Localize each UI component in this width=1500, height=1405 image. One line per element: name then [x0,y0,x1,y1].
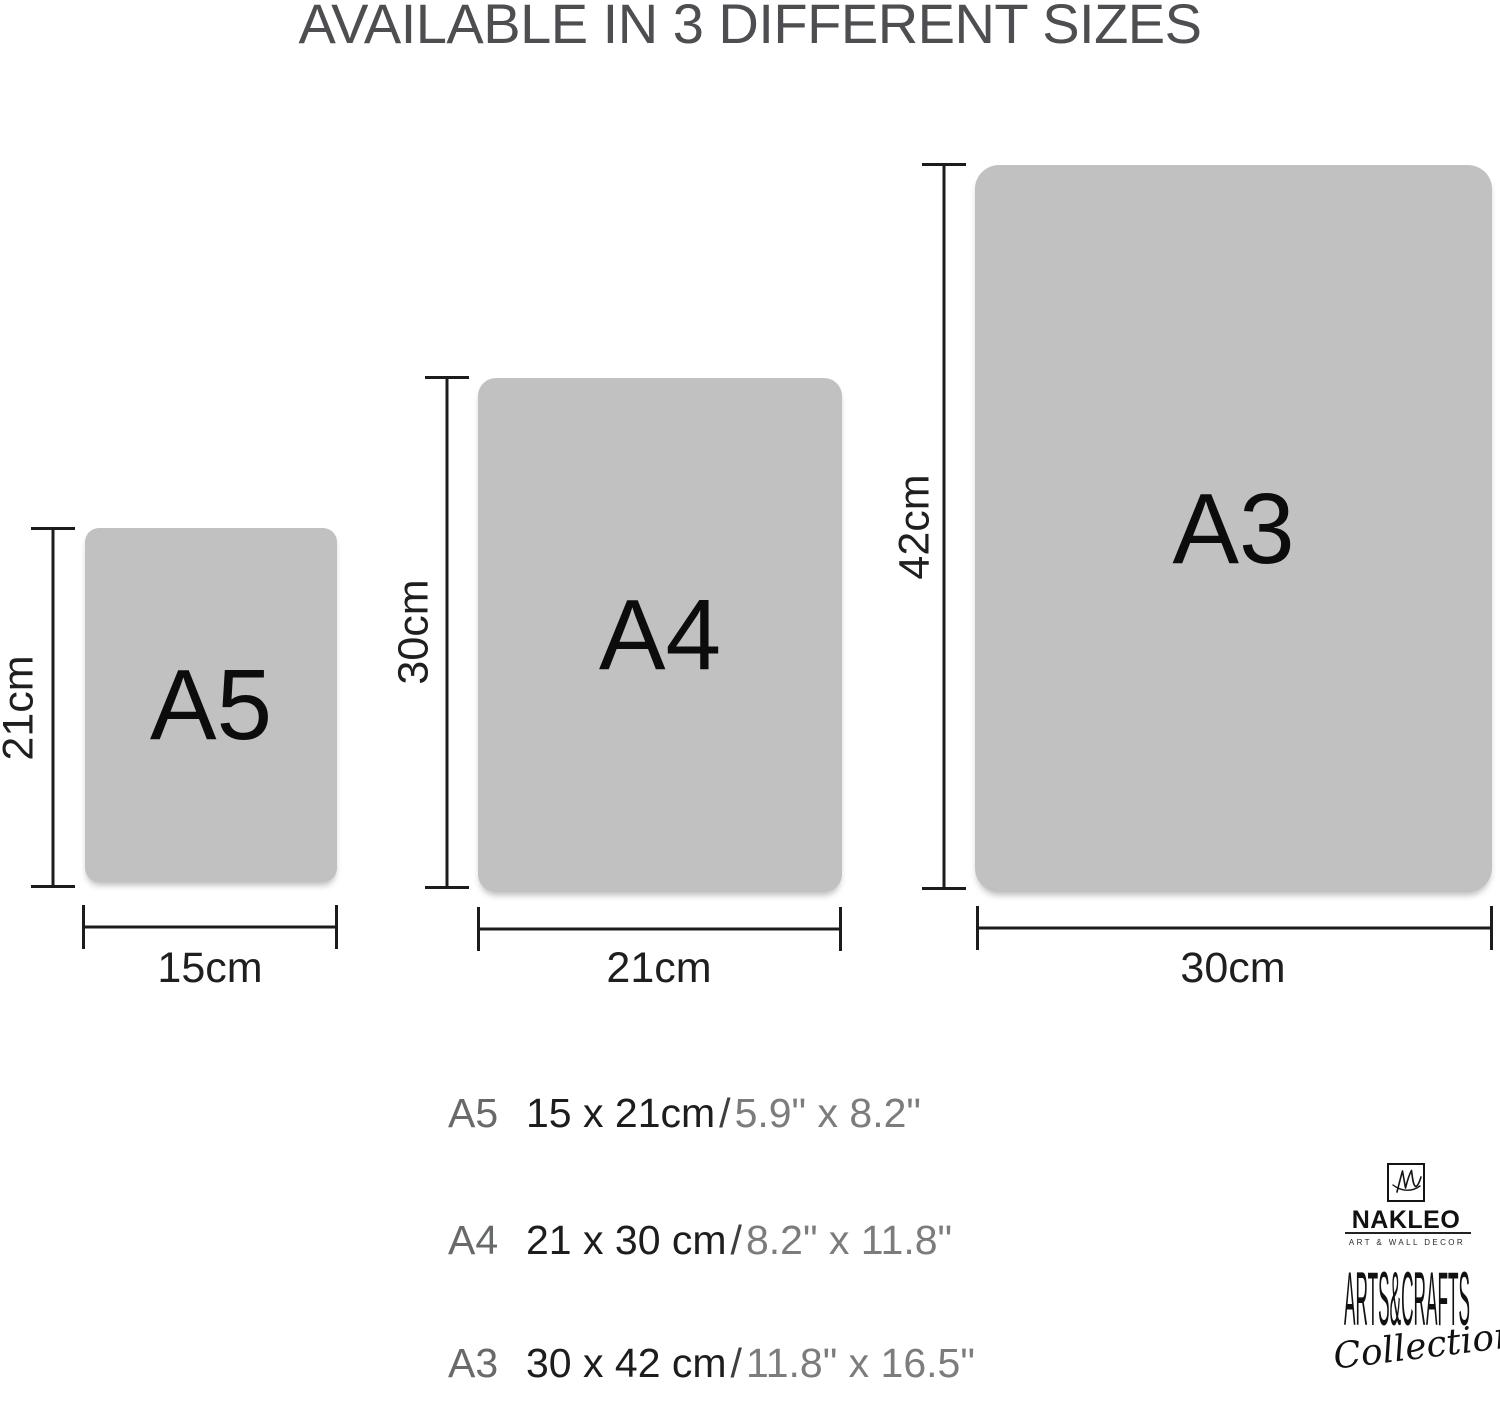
spec-metric: 15 x 21cm [526,1090,715,1136]
height-label-a5: 21cm [0,655,44,760]
measure-line [82,926,338,929]
spec-metric: 30 x 42 cm [526,1340,727,1386]
measure-line [52,527,55,888]
brand-rule-divider [1345,1232,1471,1234]
measure-line [976,927,1493,930]
nl-monogram-icon [1387,1163,1425,1202]
measure-cap [335,905,338,949]
measure-cap [922,887,966,890]
measure-cap [425,886,469,889]
paper-a3-label: A3 [1172,479,1294,579]
nl-signature-icon [1389,1165,1423,1200]
arts-and-crafts-label: ARTS&CRAFTS [1344,1266,1470,1330]
width-label-a3: 30cm [1180,944,1285,993]
spec-metric: 21 x 30 cm [526,1217,727,1263]
spec-separator: / [727,1217,746,1263]
spec-imperial: 11.8" x 16.5" [746,1340,975,1386]
measure-cap [1490,906,1493,950]
paper-a4: A4 [478,378,842,892]
spec-name: A5 [448,1090,526,1136]
height-label-a3: 42cm [891,474,940,579]
measure-cap [31,885,75,888]
arts-and-crafts-text: ARTS&CRAFTS [1343,1266,1471,1330]
size-guide-infographic: AVAILABLE IN 3 DIFFERENT SIZES A5 21cm 1… [0,0,1500,1405]
spec-row-a5: A515 x 21cm/5.9" x 8.2" [448,1090,921,1136]
width-label-a4: 21cm [606,944,711,993]
page-title: AVAILABLE IN 3 DIFFERENT SIZES [0,0,1500,54]
spec-imperial: 8.2" x 11.8" [746,1217,952,1263]
paper-a4-label: A4 [599,585,721,685]
paper-a3: A3 [975,165,1492,892]
brand-tagline: ART & WALL DECOR [1337,1238,1477,1247]
width-label-a5: 15cm [157,944,262,993]
spec-separator: / [715,1090,734,1136]
measure-cap [839,907,842,951]
measure-line [446,376,449,889]
spec-separator: / [727,1340,746,1386]
brand-name: NAKLEO [1341,1206,1471,1235]
width-measure-a5 [82,905,338,949]
spec-name: A3 [448,1340,526,1386]
height-label-a4: 30cm [390,579,439,684]
measure-line [477,928,842,931]
spec-row-a3: A330 x 42 cm/11.8" x 16.5" [448,1340,975,1386]
measure-line [943,163,946,890]
paper-a5: A5 [85,528,337,882]
spec-name: A4 [448,1217,526,1263]
spec-row-a4: A421 x 30 cm/8.2" x 11.8" [448,1217,952,1263]
paper-a5-label: A5 [150,655,272,755]
spec-imperial: 5.9" x 8.2" [735,1090,921,1136]
